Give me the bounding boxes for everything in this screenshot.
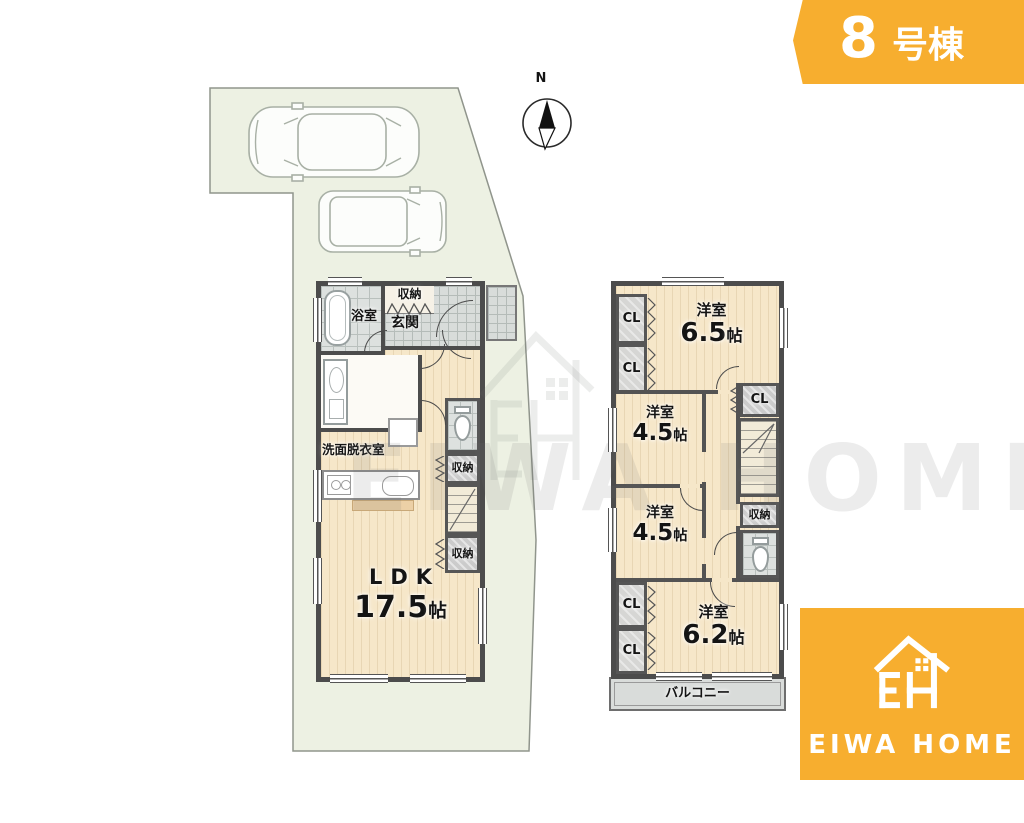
window xyxy=(662,277,724,286)
compass-icon xyxy=(518,92,576,154)
window xyxy=(328,277,362,286)
window xyxy=(656,672,702,681)
closet-1-door-icon xyxy=(647,298,656,340)
closet-1: CL xyxy=(616,294,647,344)
brand-logo-icon xyxy=(869,630,955,714)
car-2 xyxy=(319,187,446,256)
window xyxy=(779,604,788,650)
toilet-bowl xyxy=(752,546,769,572)
closet-5-door-icon xyxy=(647,632,656,670)
closet-4: CL xyxy=(616,582,647,628)
window xyxy=(410,674,466,683)
room-bath-label: 浴室 xyxy=(351,310,377,324)
room-ldk-size: 17.5帖 xyxy=(354,591,447,624)
unit-banner: 8 号棟 xyxy=(793,0,1024,84)
window xyxy=(608,408,617,452)
toilet-tank xyxy=(752,537,769,545)
wall xyxy=(702,564,706,578)
room-toilet-2f xyxy=(740,530,779,578)
unit-number: 8 xyxy=(839,6,878,71)
window xyxy=(478,588,487,644)
closet-2-door-icon xyxy=(647,348,656,390)
room-ldk-label: LDK 17.5帖 xyxy=(321,566,480,624)
storage-entry-label: 収納 xyxy=(385,286,434,303)
balcony: バルコニー xyxy=(609,677,786,711)
room-bottom-label: 洋室 6.2帖 xyxy=(648,604,779,649)
window xyxy=(313,470,322,522)
watermark-text: EIWA HOME xyxy=(345,425,1024,532)
window xyxy=(313,298,322,342)
window xyxy=(712,672,772,681)
hall-ldk-door-arc xyxy=(442,330,471,359)
closet-2: CL xyxy=(616,344,647,394)
window xyxy=(446,277,472,286)
brand-name: EIWA HOME xyxy=(800,730,1024,760)
toilet-door-arc-1f xyxy=(421,400,446,425)
washbasin xyxy=(323,359,348,425)
toilet-door-arc-2f xyxy=(714,532,737,555)
unit-suffix: 号棟 xyxy=(892,16,964,68)
accordion-door-icon xyxy=(387,303,432,315)
toilet-tank xyxy=(454,406,471,414)
compass-north-label: N xyxy=(531,72,551,86)
closet-5: CL xyxy=(616,628,647,674)
window xyxy=(330,674,388,683)
washroom-door-arc xyxy=(420,344,445,369)
brand-logo-block: EIWA HOME xyxy=(800,608,1024,780)
floorplan-page: N 8 号棟 収納 玄関 浴室 xyxy=(0,0,1024,823)
window xyxy=(608,508,617,552)
window xyxy=(779,308,788,348)
room-top-label: 洋室 6.5帖 xyxy=(644,302,779,347)
bathtub xyxy=(324,290,351,346)
car-1 xyxy=(249,103,419,181)
window xyxy=(313,558,322,604)
storage-low-label: 収納 xyxy=(452,548,474,560)
entrance-label: 玄関 xyxy=(391,316,419,331)
room-ldk-name: LDK xyxy=(369,566,440,589)
closet-3: CL xyxy=(740,383,779,417)
storage-low-door-icon xyxy=(435,539,445,569)
closet-4-door-icon xyxy=(647,586,656,624)
closet-3-door-icon xyxy=(730,386,740,414)
